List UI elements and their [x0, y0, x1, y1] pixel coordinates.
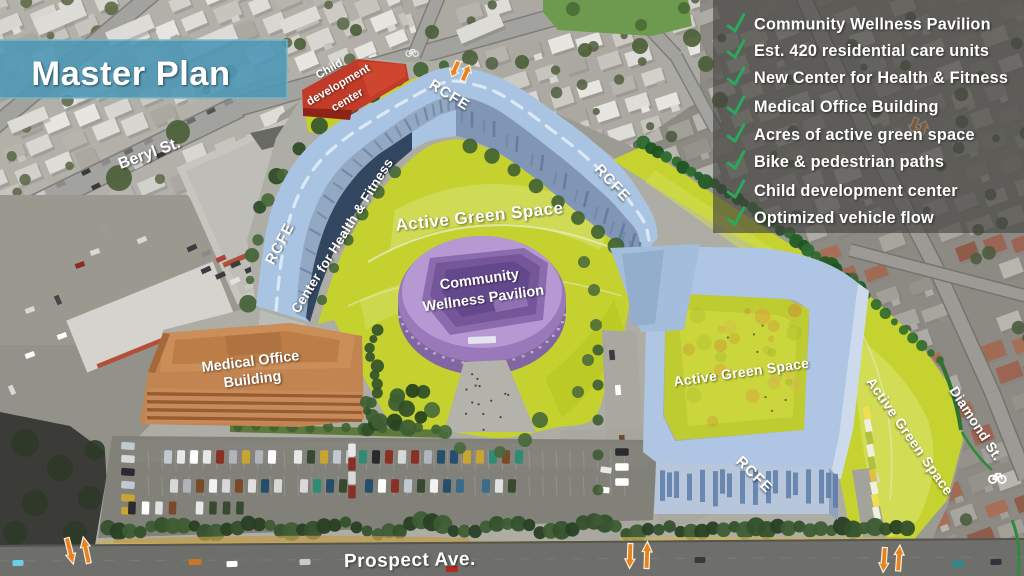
svg-text:Community Wellness Pavilion: Community Wellness Pavilion — [754, 16, 991, 34]
svg-text:Est. 420 residential care: Est. 420 residential care units — [754, 42, 989, 60]
svg-text:Bike & pedestrian paths: Bike & pedestrian paths — [754, 153, 944, 171]
svg-text:New Center for Health & F: New Center for Health & Fitness — [754, 69, 1008, 87]
svg-text:Acres of active green spac: Acres of active green space — [754, 126, 975, 144]
svg-text:Medical Office Building: Medical Office Building — [754, 98, 939, 116]
svg-text:Optimized vehicle flow: Optimized vehicle flow — [754, 209, 934, 227]
svg-text:Master Plan: Master Plan — [31, 55, 230, 93]
svg-text:Child development center: Child development center — [754, 182, 958, 200]
svg-text:Prospect Ave.: Prospect Ave. — [344, 549, 476, 572]
